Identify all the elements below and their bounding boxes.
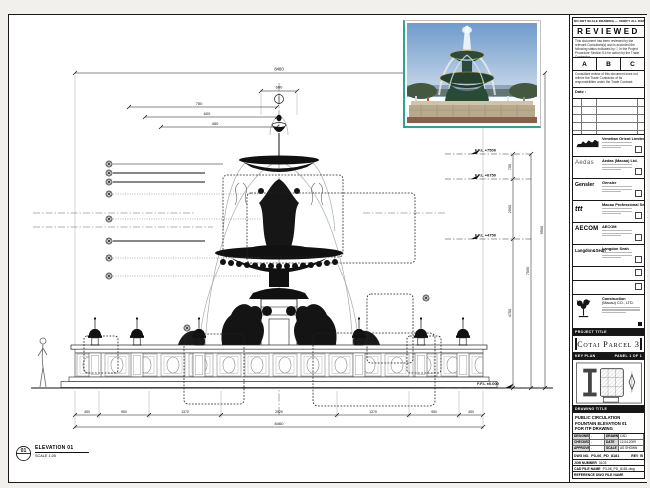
consultant-checkbox[interactable] bbox=[635, 168, 642, 175]
elevation-key: 01 ELEVATION 01 SCALE 1:25 bbox=[15, 445, 89, 462]
dim-label: 2920 bbox=[275, 410, 283, 414]
consultant-checkbox[interactable] bbox=[635, 256, 642, 263]
stamp-date-field[interactable]: Date : bbox=[573, 88, 644, 99]
consultant-checkbox[interactable] bbox=[635, 212, 642, 219]
stamp-paragraph-1: This document has been reviewed by the r… bbox=[573, 38, 644, 58]
dim-label: 7500 bbox=[526, 267, 530, 275]
level-label: F.F.L +7500 bbox=[475, 148, 497, 153]
drawing-info-table: DESIGNED- DRAWNCAD CHECKED- DATE12.04.20… bbox=[573, 434, 644, 452]
keyplan-bar: KEY PLANPANEL 1 OF 1 bbox=[573, 353, 644, 360]
dim-label: 450 bbox=[468, 410, 474, 414]
fountain-photo bbox=[407, 23, 537, 123]
status-option-a[interactable]: A bbox=[573, 58, 597, 70]
venetian-logo-icon bbox=[575, 137, 602, 155]
elevation-title: ELEVATION 01 bbox=[35, 445, 89, 451]
review-stamp: DO NOT SCALE DRAWING — VERIFY ALL DIMENS… bbox=[573, 18, 644, 135]
reference-file-row: REFERENCE DWG FILE NAME bbox=[573, 472, 644, 478]
contractor-block: Construction (Macau) CO., LTD. bbox=[573, 295, 644, 329]
dwg-number-row: DWG NO. P3-06_PD_8181 REV B bbox=[573, 452, 644, 460]
reviewed-title: REVIEWED bbox=[573, 26, 644, 38]
dim-label: 950 bbox=[121, 410, 127, 414]
water-level-lines bbox=[33, 213, 445, 227]
consultant-venetian: Venetian Orient Limited bbox=[573, 135, 644, 157]
revision-row bbox=[573, 107, 644, 115]
consultant-checkbox[interactable] bbox=[635, 269, 642, 276]
dim-label: 9500 bbox=[540, 226, 544, 234]
elevation-number: 01 bbox=[21, 448, 27, 454]
consultant-langdon: Langdon&Seah Langdon Seah bbox=[573, 245, 644, 267]
project-name: Cotai Parcel 3 bbox=[577, 340, 640, 349]
mps-logo: ttt bbox=[575, 203, 602, 221]
level-label: F.F.L ±0.000 bbox=[477, 381, 500, 386]
aecom-logo: AECOM bbox=[575, 225, 602, 243]
contractor-logo-icon bbox=[575, 297, 602, 326]
drawing-title-text: PUBLIC CIRCULATION FOUNTAIN ELEVATION 01… bbox=[573, 413, 644, 434]
consultant-aedas: Aedas Aedas (Macau) Ltd. bbox=[573, 157, 644, 179]
elevation-reference-icon: 01 bbox=[15, 445, 32, 462]
level-label: F.F.L +6750 bbox=[475, 173, 497, 178]
langdon-logo: Langdon&Seah bbox=[575, 247, 602, 265]
status-option-b[interactable]: B bbox=[597, 58, 621, 70]
dim-label: 8460 bbox=[275, 421, 285, 426]
elevation-scale: SCALE 1:25 bbox=[35, 454, 89, 458]
stamp-header-note: DO NOT SCALE DRAWING — VERIFY ALL DIMENS… bbox=[573, 18, 644, 26]
dim-label: 2000 bbox=[508, 205, 512, 213]
dim-label: 450 bbox=[84, 410, 90, 414]
keyplan-drawing bbox=[573, 360, 644, 406]
contractor-stamp-mark bbox=[638, 322, 642, 326]
consultant-checkbox[interactable] bbox=[635, 234, 642, 241]
aedas-logo: Aedas bbox=[575, 159, 602, 177]
scale-figure bbox=[38, 338, 47, 387]
dim-label: 750 bbox=[196, 101, 203, 106]
dim-label: 1370 bbox=[369, 410, 377, 414]
dim-label: 450 bbox=[212, 121, 219, 126]
revision-row bbox=[573, 115, 644, 123]
consultant-gensler: Gensler Gensler bbox=[573, 179, 644, 201]
consultant-mps: ttt Macau Professional Services Ltd. bbox=[573, 201, 644, 223]
project-name-row: Cotai Parcel 3 bbox=[573, 336, 644, 353]
title-block-column: DO NOT SCALE DRAWING — VERIFY ALL DIMENS… bbox=[569, 15, 647, 482]
dim-label: 1370 bbox=[181, 410, 189, 414]
project-title-bar: PROJECT TITLE bbox=[573, 329, 644, 336]
revision-row bbox=[573, 99, 644, 107]
status-option-c[interactable]: C bbox=[621, 58, 644, 70]
consultant-checkbox[interactable] bbox=[635, 283, 642, 290]
dimensions-bottom: 450 950 1370 2920 1370 950 450 8460 bbox=[73, 410, 485, 429]
level-label: F.F.L +4750 bbox=[475, 233, 497, 238]
stamp-paragraph-2: Consultant review of this document does … bbox=[573, 71, 644, 88]
reference-photo bbox=[403, 20, 541, 128]
consultant-checkbox[interactable] bbox=[635, 190, 642, 197]
dim-label: 8460 bbox=[274, 67, 284, 72]
drawing-sheet: 8460 600 750 600 450 450 950 1370 2920 1… bbox=[8, 14, 647, 483]
dim-label: 950 bbox=[431, 410, 437, 414]
project-emblem-icon bbox=[640, 338, 642, 350]
drawing-title-bar: DRAWING TITLE bbox=[573, 406, 644, 413]
gensler-logo: Gensler bbox=[575, 181, 602, 199]
dim-label: 600 bbox=[276, 85, 283, 90]
status-options: A B C bbox=[573, 58, 644, 71]
empty-consultant-block bbox=[573, 281, 644, 295]
empty-consultant-block bbox=[573, 267, 644, 281]
dim-label: 4750 bbox=[508, 309, 512, 317]
elevation-underline bbox=[35, 452, 89, 453]
dim-label: 750 bbox=[508, 164, 512, 170]
revision-row bbox=[573, 123, 644, 131]
dim-label: 600 bbox=[204, 111, 211, 116]
consultant-aecom: AECOM AECOM bbox=[573, 223, 644, 245]
consultant-checkbox[interactable] bbox=[635, 146, 642, 153]
